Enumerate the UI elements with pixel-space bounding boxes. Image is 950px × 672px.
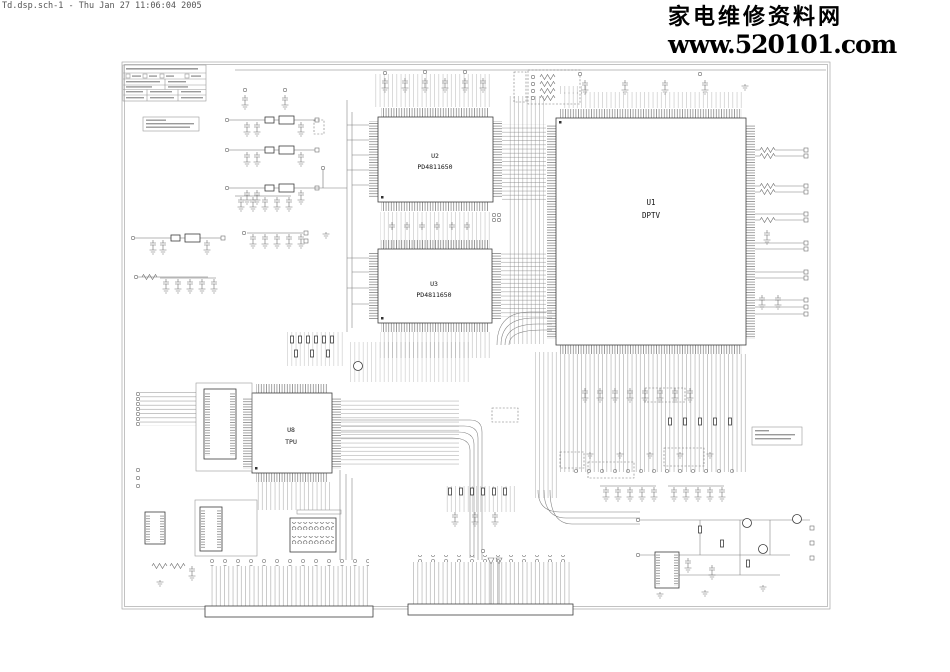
- u2-top-decoupling: [374, 70, 492, 107]
- notes-box: [143, 117, 199, 131]
- schematic-page: { "header": { "text": "Td.dsp.sch-1 - Th…: [0, 0, 950, 672]
- left-feed-wires: [315, 100, 369, 332]
- chip-u8: U8 TPU: [243, 384, 341, 482]
- chip-u2-part: PD4811650: [417, 163, 452, 171]
- schematic-canvas: U2 PD4811650 U3 PD4811650 U1 D: [0, 0, 950, 672]
- bottom-connector-left: [205, 559, 373, 617]
- chip-u8-part: TPU: [285, 438, 297, 446]
- u1-bottom-fanout: [492, 354, 746, 475]
- bottom-connector-right: [408, 555, 573, 615]
- chip-u3-ref: U3: [430, 280, 438, 288]
- chip-u1-part: DPTV: [642, 211, 661, 220]
- title-block: [123, 65, 206, 101]
- notes-box-2: [752, 427, 802, 445]
- chip-u1: U1 DPTV: [547, 109, 755, 354]
- chip-u1-ref: U1: [646, 198, 655, 207]
- memory-module: [136, 383, 252, 471]
- bottom-right-transistors: [636, 515, 814, 599]
- chip-u2-ref: U2: [431, 152, 439, 160]
- chip-u3-part: PD4811650: [416, 291, 451, 299]
- chip-u8-ref: U8: [287, 426, 295, 434]
- u1-right-io: [755, 148, 808, 317]
- u1-top-decoupling: [562, 72, 749, 108]
- left-filter-circuits: [131, 88, 329, 293]
- chip-u2: U2 PD4811650: [369, 108, 502, 211]
- chip-u3: U3 PD4811650: [369, 240, 501, 332]
- mid-bus: [497, 96, 552, 345]
- u3-bottom-bus: [285, 332, 492, 382]
